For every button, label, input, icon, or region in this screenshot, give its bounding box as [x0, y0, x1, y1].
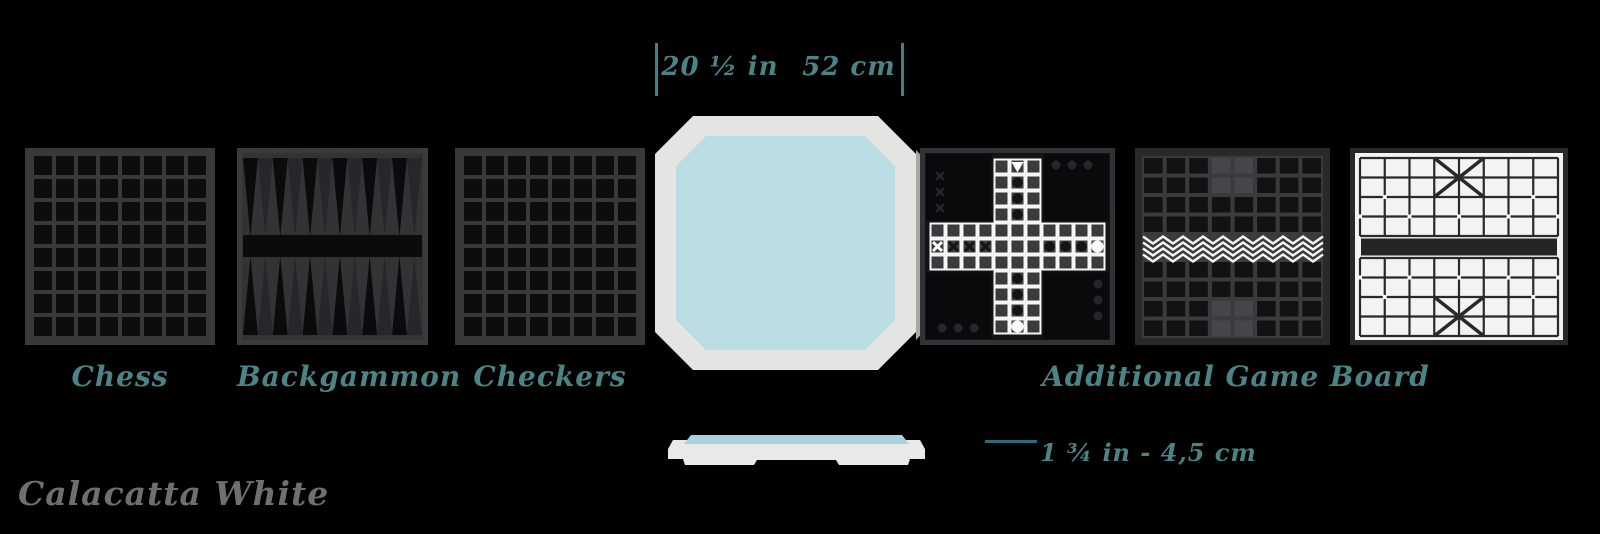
checkers-board-graphic [455, 148, 645, 345]
width-dimension-left-tick [655, 43, 658, 96]
product-top-view [655, 116, 916, 370]
width-dimension-cm: 52 cm [797, 52, 901, 82]
xiangqi-dark-board-graphic [1135, 148, 1330, 345]
chess-board-graphic [25, 148, 215, 345]
width-dimension-inches: 20 ½ in [660, 52, 780, 82]
width-dimension-right-tick [901, 43, 904, 96]
side-view-surface [684, 435, 909, 444]
thickness-dimension-label: 1 ¾ in - 4,5 cm [1040, 438, 1200, 467]
xiangqi-board-graphic [1350, 148, 1568, 345]
ludo-board-graphic [920, 148, 1115, 345]
thickness-rule [985, 440, 1037, 443]
backgammon-label: Backgammon [237, 360, 428, 393]
backgammon-board-graphic [237, 148, 428, 345]
additional-game-board-label: Additional Game Board [1042, 360, 1422, 393]
product-side-view [668, 434, 925, 466]
product-surface [676, 136, 895, 350]
checkers-label: Checkers [455, 360, 645, 393]
product-dimension-diagram: 20 ½ in 52 cm [0, 0, 1600, 534]
finish-name-label: Calacatta White [18, 474, 329, 513]
chess-label: Chess [25, 360, 215, 393]
backgammon-bar [243, 235, 422, 257]
river-band [1361, 239, 1557, 256]
